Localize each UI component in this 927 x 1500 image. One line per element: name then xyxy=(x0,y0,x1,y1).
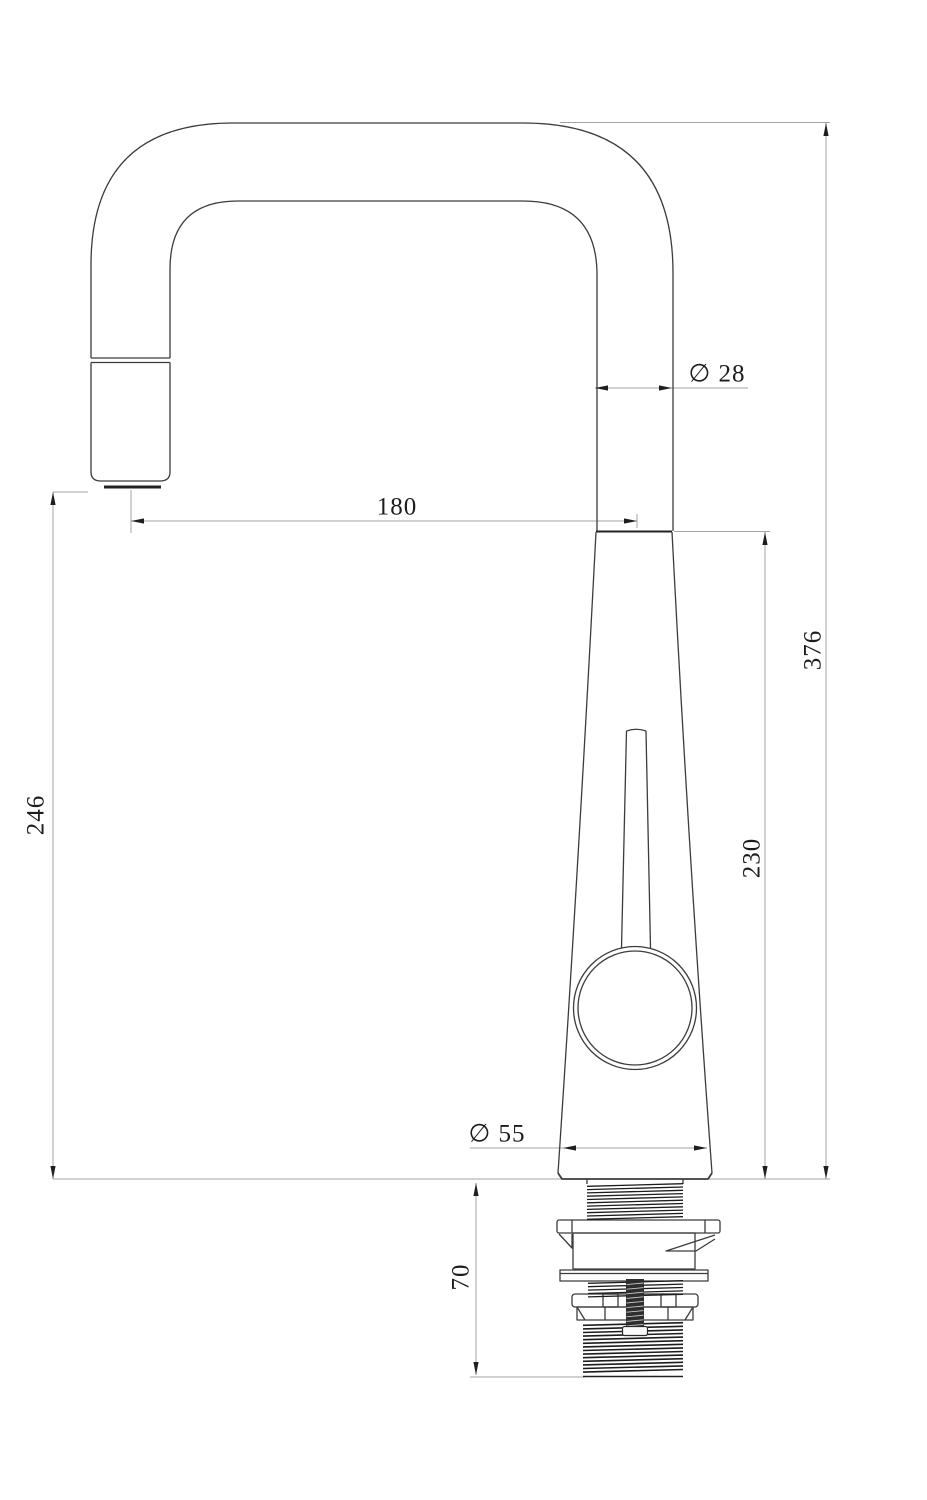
technical-drawing-canvas: 246 180 ∅ 28 376 230 ∅ 55 70 xyxy=(0,0,927,1500)
handle-lever xyxy=(622,729,651,948)
dim-body-height-label: 230 xyxy=(740,838,765,879)
spray-head xyxy=(91,363,170,488)
dim-spout-diameter-label: ∅ 28 xyxy=(688,362,745,387)
dim-base-diameter-label: ∅ 55 xyxy=(468,1122,525,1147)
handle-cap xyxy=(574,947,697,1070)
dim-total-height-label: 376 xyxy=(801,630,826,671)
mounting-flange xyxy=(557,1220,720,1269)
dim-shank-length-label: 70 xyxy=(449,1264,474,1291)
dim-outlet-height-label: 246 xyxy=(24,795,49,836)
fixing-stud xyxy=(623,1279,648,1336)
body-cone xyxy=(558,532,712,1184)
dim-spout-reach-label: 180 xyxy=(377,495,418,520)
dimension-arrows xyxy=(50,123,828,1375)
spray-head-seam xyxy=(91,358,170,363)
threaded-shank xyxy=(583,1184,683,1372)
spout-outline xyxy=(91,123,673,531)
